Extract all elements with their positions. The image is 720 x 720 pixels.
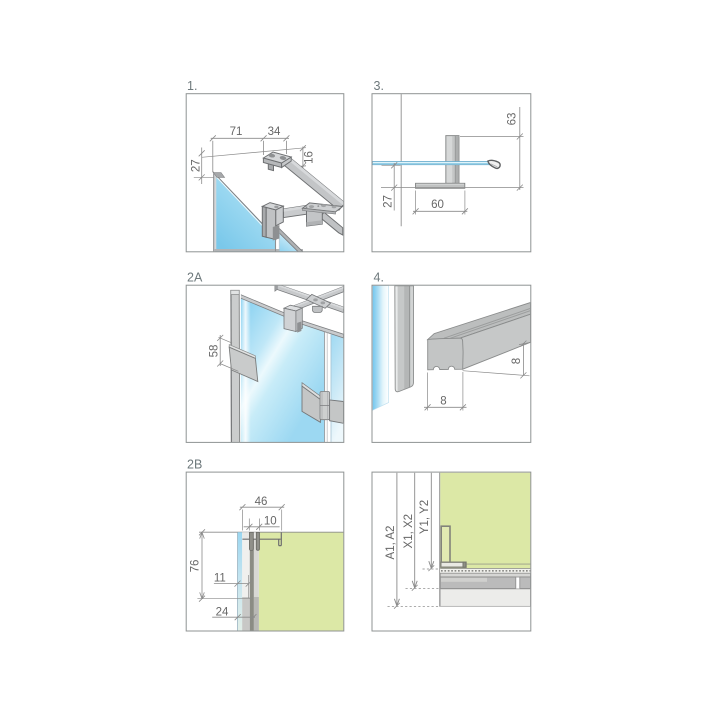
- svg-text:A1, A2: A1, A2: [385, 526, 397, 560]
- svg-text:2B: 2B: [187, 458, 202, 472]
- svg-text:Y1, Y2: Y1, Y2: [419, 500, 431, 534]
- svg-text:4.: 4.: [374, 271, 384, 285]
- svg-text:60: 60: [431, 199, 444, 211]
- svg-text:10: 10: [264, 516, 277, 528]
- svg-text:27: 27: [191, 159, 203, 172]
- svg-text:34: 34: [268, 126, 281, 138]
- svg-text:63: 63: [507, 113, 519, 126]
- svg-text:2A: 2A: [187, 271, 203, 285]
- svg-text:16: 16: [304, 151, 316, 164]
- svg-text:71: 71: [230, 126, 243, 138]
- svg-text:27: 27: [383, 195, 395, 208]
- svg-text:1.: 1.: [187, 79, 197, 93]
- svg-text:76: 76: [189, 560, 201, 573]
- svg-text:3.: 3.: [374, 79, 384, 93]
- svg-text:46: 46: [255, 496, 268, 508]
- svg-text:8: 8: [511, 358, 523, 364]
- svg-text:8: 8: [440, 396, 446, 408]
- svg-text:11: 11: [214, 573, 226, 585]
- svg-text:24: 24: [216, 607, 229, 619]
- svg-text:58: 58: [208, 345, 220, 358]
- svg-text:X1, X2: X1, X2: [403, 514, 415, 549]
